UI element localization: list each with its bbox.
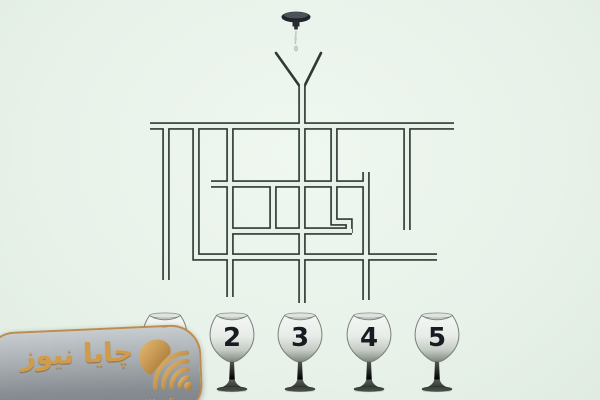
tap-icon xyxy=(282,12,311,30)
watermark-card: چایا نیوز C H A Y A N E W S xyxy=(0,324,204,400)
glass-number-5: 5 xyxy=(428,323,446,353)
wine-glass-4: 4 xyxy=(347,313,391,392)
wine-glass-5: 5 xyxy=(415,313,459,392)
wine-glass-3: 3 xyxy=(278,313,322,392)
glass-number-3: 3 xyxy=(291,323,309,353)
water-drip-icon xyxy=(294,31,297,51)
hand-signal-waves-icon xyxy=(132,331,197,398)
pipe-maze-interior xyxy=(150,84,454,303)
puzzle-image: 1 2 3 4 5 چایا نیوز C H A Y A N E W S xyxy=(0,0,600,400)
glass-number-4: 4 xyxy=(360,323,378,353)
funnel-icon xyxy=(276,53,321,86)
watermark-brand-farsi: چایا نیوز xyxy=(20,337,134,373)
glass-number-2: 2 xyxy=(223,323,241,353)
wine-glass-2: 2 xyxy=(210,313,254,392)
